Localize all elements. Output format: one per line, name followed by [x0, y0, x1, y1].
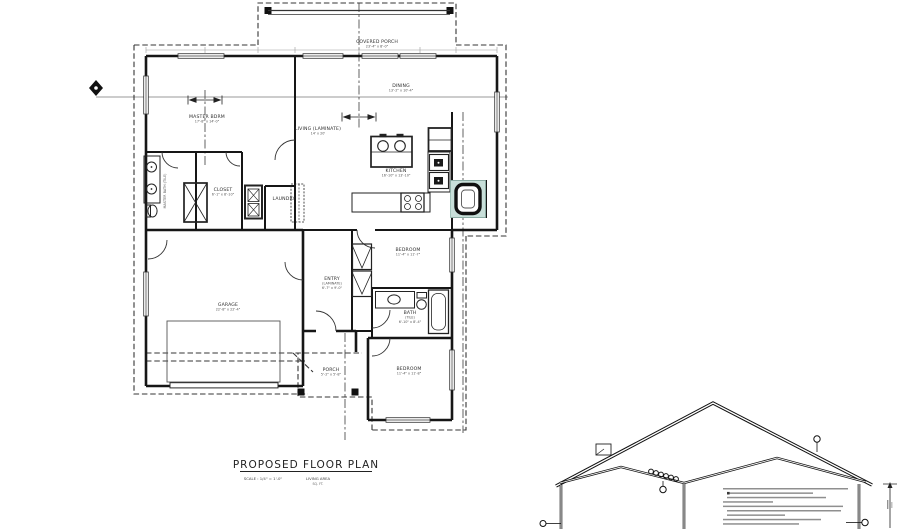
- dims-kitchen: 16'-10" x 13'-10": [382, 174, 411, 178]
- dims-living: 14' x 20': [311, 132, 326, 136]
- label-master-bath: MASTER BATH (TILE): [163, 173, 167, 209]
- dims-covered-porch: 23'-4" x 8'-0": [366, 45, 389, 49]
- dims-bath2: 6'-10" x 8'-4": [399, 320, 422, 324]
- note-line: [723, 488, 848, 490]
- section-marker-dot: [94, 86, 98, 90]
- drawing-canvas: COVERED PORCH 23'-4" x 8'-0" DINING 13'-…: [0, 0, 900, 529]
- faucet-dot: [151, 188, 153, 190]
- faucet-dot: [151, 166, 153, 168]
- note-line: [727, 497, 826, 499]
- note-line: [727, 514, 785, 516]
- note-line: [723, 523, 799, 525]
- drawing-title: PROPOSED FLOOR PLAN: [233, 459, 379, 471]
- water-heater-inner: [462, 190, 475, 208]
- note-bullet: [727, 492, 730, 495]
- dims-master-bdrm: 17'-8" x 14'-0": [195, 120, 220, 124]
- note-line: [723, 506, 843, 508]
- rear-porch-post: [298, 389, 305, 396]
- dims-porch: 5'-2" x 5'-8": [321, 373, 342, 377]
- dims-garage: 22'-8" x 22'-4": [216, 308, 241, 312]
- dim-text-mark: [887, 500, 888, 509]
- dims-bedroom2: 11'-4" x 11'-8": [397, 372, 422, 376]
- sub-bath2: (TILE): [405, 315, 415, 319]
- note-line: [727, 510, 841, 512]
- garage-door-panel: [170, 383, 278, 388]
- label-laundry: LAUNDRY: [273, 196, 296, 202]
- island-faucet: [380, 134, 387, 137]
- dims-dining: 13'-2" x 10'-4": [389, 89, 414, 93]
- dims-bedroom1: 11'-4" x 11'-7": [396, 253, 421, 257]
- dims-closet: 6'-1" x 8'-10": [212, 193, 235, 197]
- island-faucet: [397, 134, 404, 137]
- rear-porch-post: [352, 389, 359, 396]
- scale-note: SCALE : 1/4" = 1'-0": [244, 476, 283, 481]
- note-line: [727, 492, 813, 494]
- note-line: [723, 501, 773, 503]
- note-line: [723, 519, 821, 521]
- dim-text-mark: [891, 502, 892, 508]
- dims-entry: 6'-7" x 9'-0": [322, 286, 343, 290]
- appliance-dot: [438, 180, 440, 182]
- area-note: LIVING AREA: [306, 476, 331, 481]
- sub-entry: (LAMINATE): [322, 282, 342, 286]
- area-sub-note: SQ. FT.: [313, 482, 324, 486]
- appliance-dot: [438, 162, 440, 164]
- water-heater-highlight: [451, 181, 486, 218]
